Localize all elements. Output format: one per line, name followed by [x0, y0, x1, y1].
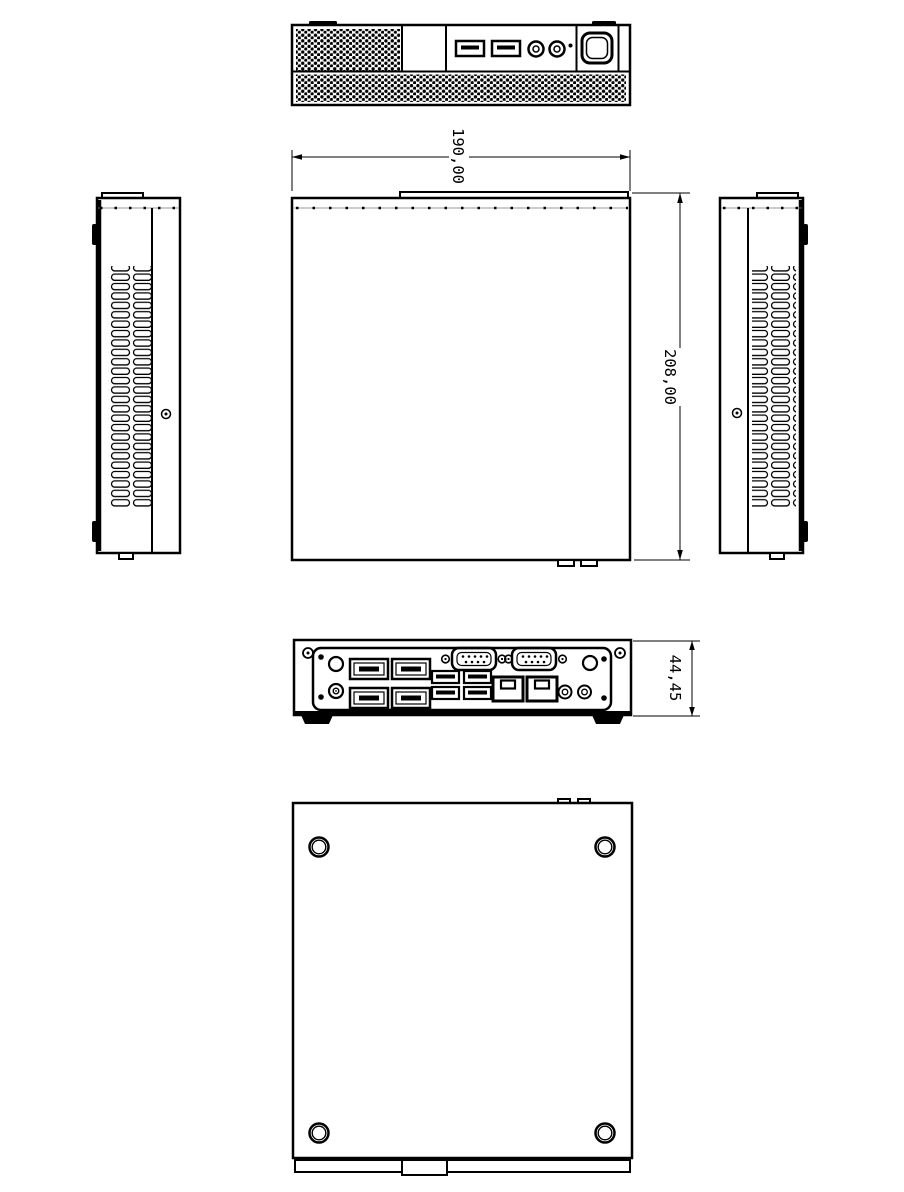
right-bottom-tab — [770, 553, 784, 559]
bottom-rear-strip — [295, 1160, 630, 1172]
arrowhead — [689, 641, 695, 650]
left-foot-top — [92, 224, 97, 245]
rear-foot-left — [301, 715, 333, 724]
arrowhead — [677, 550, 683, 560]
bottom-chassis-outline — [293, 803, 632, 1158]
front-bottom-vent-grille — [296, 75, 626, 103]
arrowhead — [620, 154, 630, 160]
plate-screw — [601, 656, 607, 662]
top-bottom-tab-2 — [581, 560, 597, 566]
bottom-rear-strip-tab — [402, 1160, 447, 1175]
left-vent-slots — [108, 266, 152, 508]
top-view — [292, 192, 630, 566]
rear-foot-right — [592, 715, 624, 724]
top-bottom-tab-1 — [558, 560, 574, 566]
rear-view — [294, 640, 631, 724]
right-vent-slots — [752, 266, 796, 508]
front-left-vent-grille — [296, 29, 400, 71]
plate-screw — [318, 654, 324, 660]
dimension-height: 44,45 — [633, 641, 700, 716]
left-foot-bottom — [92, 521, 97, 542]
arrowhead — [677, 193, 683, 203]
right-side-view — [720, 193, 808, 559]
power-led — [569, 44, 573, 48]
bottom-view — [293, 799, 632, 1175]
dimension-depth: 208,00 — [632, 193, 690, 560]
top-chassis-outline — [292, 198, 630, 560]
mechanical-drawing-page: 190,00 208,00 — [0, 0, 904, 1192]
plate-screw — [601, 695, 607, 701]
dimension-width-label: 190,00 — [449, 128, 467, 184]
right-foot-bottom — [803, 521, 808, 542]
drawing-sheet: 190,00 208,00 — [0, 0, 904, 1192]
front-view — [292, 21, 630, 105]
plate-screw — [318, 694, 324, 700]
arrowhead — [689, 707, 695, 716]
arrowhead — [292, 154, 302, 160]
dimension-depth-label: 208,00 — [661, 349, 679, 405]
right-foot-top — [803, 224, 808, 245]
left-side-view — [92, 193, 180, 559]
dimension-width: 190,00 — [292, 127, 630, 191]
left-bottom-tab — [119, 553, 133, 559]
dimension-height-label: 44,45 — [666, 655, 684, 702]
